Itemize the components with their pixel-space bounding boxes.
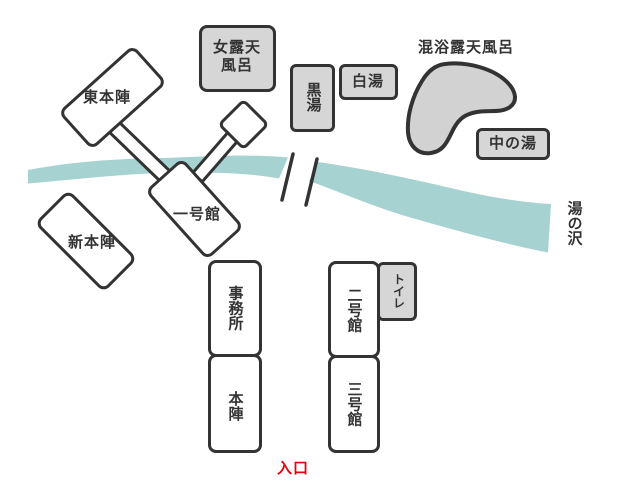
label-kuroyu: 黒湯 [306,82,321,112]
label-yunosawa: 湯の沢 [567,201,582,246]
label-jimusho: 事務所 [228,286,243,331]
label-honjin: 本陣 [228,391,243,421]
label-higashi-honjin: 東本陣 [83,89,131,107]
label-naka-no-yu: 中の湯 [489,135,537,153]
label-konyoku-rotenburo: 混浴露天風呂 [418,39,514,57]
onsen-facility-map: 東本陣 女露天 風呂 黒湯 白湯 混浴露天風呂 中の湯 湯の沢 新本陣 一号館 … [0,0,623,483]
label-sangokan: 三号館 [347,382,362,427]
label-entrance: 入口 [277,460,309,478]
label-nigokan: 二号館 [347,288,362,333]
river-right-segment [309,162,551,253]
label-ichigokan: 一号館 [173,206,221,224]
label-shirayu: 白湯 [352,73,384,91]
label-onna-rotenburo: 女露天 風呂 [213,39,261,75]
label-shin-honjin: 新本陣 [68,234,116,252]
label-toilet: トイレ [391,273,406,309]
